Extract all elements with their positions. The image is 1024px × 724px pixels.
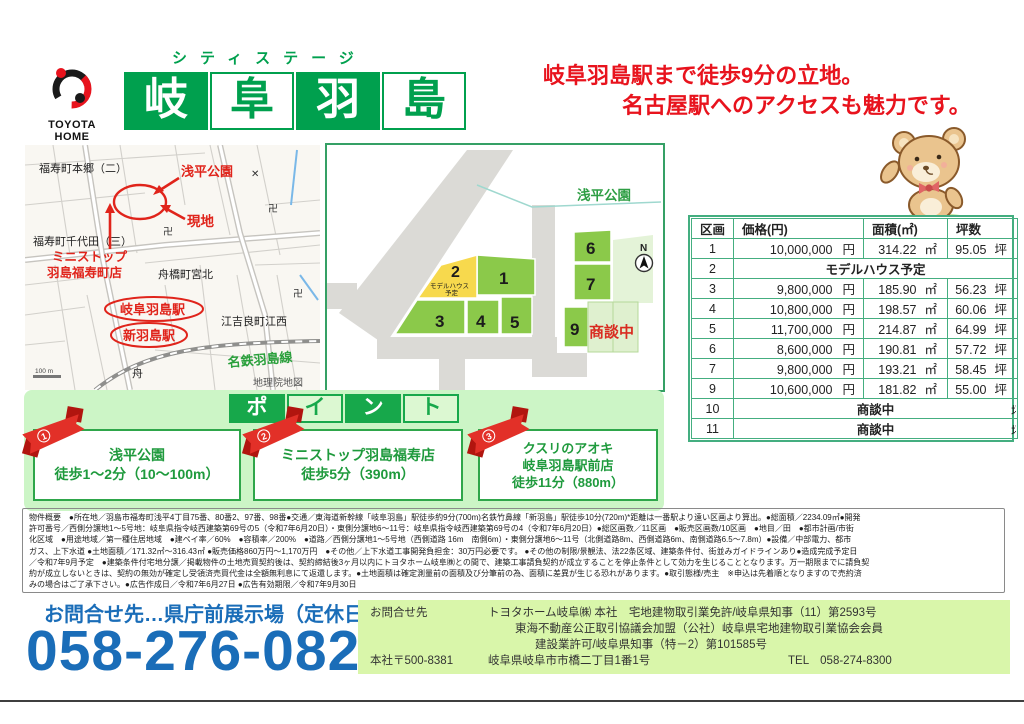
- point-card-drugstore: 3 クスリのアオキ 岐阜羽島駅前店 徒歩11分（880m）: [478, 429, 658, 501]
- col-header-price: 価格(円): [734, 219, 864, 239]
- title-char-1: 岐: [124, 72, 208, 130]
- lot-cell: 7: [692, 359, 734, 379]
- points-title: ポ イ ン ト: [229, 394, 459, 423]
- table-row: 1 10,000,000円 314.22㎡ 95.05坪: [692, 239, 1018, 259]
- price-cell: 10,000,000円: [734, 239, 864, 259]
- company-contact-label: お問合せ先: [370, 605, 488, 621]
- area-cell: 314.22㎡: [864, 239, 948, 259]
- point-text: 岐阜羽島駅前店: [480, 457, 656, 474]
- lot-cell: 9: [692, 379, 734, 399]
- map-label-gifu-hashima-sta: 岐阜羽島駅: [120, 302, 186, 317]
- phone-number: 058-276-0826: [26, 618, 393, 684]
- lot-cell: 2: [692, 259, 734, 279]
- model-house-cell: モデルハウス予定: [734, 259, 1018, 279]
- lot-cell: 3: [692, 279, 734, 299]
- lot-number-6: 6: [586, 239, 595, 258]
- tsubo-cell: 60.06坪: [948, 299, 1018, 319]
- table-row: 3 9,800,000円 185.90㎡ 56.23坪: [692, 279, 1018, 299]
- logo-line1: TOYOTA: [34, 119, 110, 131]
- map-school-icon: ✕: [251, 169, 259, 180]
- tsubo-cell: 64.99坪: [948, 319, 1018, 339]
- table-row: 4 10,800,000円 198.57㎡ 60.06坪: [692, 299, 1018, 319]
- company-info-box: お問合せ先トヨタホーム岐阜㈱ 本社 宅地建物取引業免許/岐阜県知事（11）第25…: [358, 600, 1010, 674]
- lot-number-2: 2: [451, 264, 460, 281]
- catch-copy-line1: 岐阜羽島駅まで徒歩9分の立地。: [543, 58, 863, 90]
- title-char-4: 島: [382, 72, 466, 130]
- company-line-3: 建設業許可/岐阜県知事（特－2）第101585号: [370, 637, 998, 653]
- table-row: 11 商談中坪: [692, 419, 1018, 439]
- price-cell: 9,800,000円: [734, 279, 864, 299]
- title-char-2: 阜: [210, 72, 294, 130]
- model-house-note-2: 予定: [445, 288, 459, 297]
- overview-line: みの場合はご了承下さい。●広告作成日／令和7年6月27日 ●広告有効期限／令和7…: [29, 579, 998, 590]
- lot-number-7: 7: [586, 275, 595, 294]
- siteplan-park-label: 浅平公園: [577, 187, 631, 203]
- logo-line2: HOME: [34, 131, 110, 143]
- map-label-chiyoda: 福寿町千代田（三）: [33, 234, 132, 248]
- lot-number-5: 5: [510, 313, 519, 332]
- price-cell: 10,600,000円: [734, 379, 864, 399]
- overview-line: 許可番号／西側分譲地1～5号地：岐阜県指令岐西建築第69号の5（令和7年6月20…: [29, 523, 998, 534]
- table-row: 7 9,800,000円 193.21㎡ 58.45坪: [692, 359, 1018, 379]
- map-temple-icon: 卍: [293, 288, 303, 300]
- hq-address: 岐阜県岐阜市市橋二丁目1番1号: [488, 653, 788, 669]
- table-header-row: 区画 価格(円) 面積(㎡) 坪数: [692, 219, 1018, 239]
- overview-line: 約が成立しないときは、契約の無効が確定し受領済売買代金は全額無利息にて返還します…: [29, 568, 998, 579]
- series-subtitle: シティステージ: [172, 47, 367, 68]
- site-plan: 浅平公園 1 2 モデルハウス 予定 3 4: [325, 143, 665, 392]
- map-credit: 地理院地図: [253, 376, 303, 389]
- pending-cell: 商談中坪: [734, 399, 1018, 419]
- overview-line: 化区域 ●用途地域／第一種住居地域 ●建ペイ率／60% ●容積率／200% ●道…: [29, 534, 998, 545]
- table-row: 2 モデルハウス予定: [692, 259, 1018, 279]
- pending-cell: 商談中坪: [734, 419, 1018, 439]
- points-title-char-4: ト: [403, 394, 459, 423]
- table-row: 10 商談中坪: [692, 399, 1018, 419]
- lot-cell: 11: [692, 419, 734, 439]
- table-row: 5 11,700,000円 214.87㎡ 64.99坪: [692, 319, 1018, 339]
- area-cell: 185.90㎡: [864, 279, 948, 299]
- points-title-char-3: ン: [345, 394, 401, 423]
- area-cell: 190.81㎡: [864, 339, 948, 359]
- toyota-home-logo: TOYOTA HOME: [34, 64, 110, 143]
- map-temple-icon: 卍: [163, 226, 173, 238]
- price-table: 区画 価格(円) 面積(㎡) 坪数 1 10,000,000円 314.22㎡ …: [688, 215, 1014, 442]
- model-house-note-1: モデルハウス: [430, 281, 469, 290]
- company-line-4: 本社〒500-8381岐阜県岐阜市市橋二丁目1番1号TEL 058-274-83…: [370, 653, 998, 669]
- price-cell: 11,700,000円: [734, 319, 864, 339]
- lot-number-3: 3: [435, 312, 444, 331]
- map-label-asahira-park: 浅平公園: [181, 164, 233, 179]
- point-text: 徒歩1～2分（10～100m）: [35, 465, 239, 484]
- title-char-3: 羽: [296, 72, 380, 130]
- table-row: 6 8,600,000円 190.81㎡ 57.72坪: [692, 339, 1018, 359]
- map-label-fune: 舟: [132, 366, 143, 380]
- point-text: ミニストップ羽島福寿店: [255, 446, 461, 465]
- lot-cell: 10: [692, 399, 734, 419]
- park-boundary-line: [477, 185, 661, 207]
- tsubo-cell: 56.23坪: [948, 279, 1018, 299]
- lot-number-4: 4: [476, 312, 486, 331]
- lot-cell: 4: [692, 299, 734, 319]
- col-header-lot: 区画: [692, 219, 734, 239]
- overview-line: ／令和7年9月予定 ●建築条件付宅地分譲／掲載物件の土地売買契約後は、契約締結後…: [29, 557, 998, 568]
- area-cell: 214.87㎡: [864, 319, 948, 339]
- tsubo-cell: 57.72坪: [948, 339, 1018, 359]
- map-label-genchi: 現地: [187, 213, 214, 229]
- property-title: 岐 阜 羽 島: [124, 72, 466, 130]
- map-label-egira: 江吉良町江西: [221, 314, 287, 328]
- map-label-ministop2: 羽島福寿町店: [47, 265, 123, 280]
- overview-line: 物件概要 ●所在地／羽島市福寿町浅平4丁目75番、80番2、97番、98番●交通…: [29, 512, 998, 523]
- map-scale: 100 m: [35, 368, 53, 375]
- price-cell: 9,800,000円: [734, 359, 864, 379]
- lot-cell: 5: [692, 319, 734, 339]
- price-cell: 10,800,000円: [734, 299, 864, 319]
- toyota-home-logo-icon: [47, 64, 97, 114]
- table-row: 9 10,600,000円 181.82㎡ 55.00坪: [692, 379, 1018, 399]
- points-section: ポ イ ン ト 1 浅平公園 徒歩1～2分（10～100m） 2 ミニストップ羽…: [24, 390, 664, 511]
- col-header-tsubo: 坪数: [948, 219, 1018, 239]
- point-text: 徒歩11分（880m）: [480, 474, 656, 491]
- area-cell: 193.21㎡: [864, 359, 948, 379]
- map-label-hongo: 福寿町本郷（二）: [39, 161, 127, 175]
- map-temple-icon: 卍: [268, 203, 278, 215]
- hq-telephone: TEL 058-274-8300: [788, 655, 892, 667]
- page-bottom-rule: [0, 700, 1024, 702]
- point-card-park: 1 浅平公園 徒歩1～2分（10～100m）: [33, 429, 241, 501]
- lot-number-9: 9: [570, 320, 579, 339]
- hq-postal-code: 本社〒500-8381: [370, 653, 488, 669]
- map-label-funabashi: 舟橋町宮北: [158, 267, 213, 281]
- tsubo-cell: 95.05坪: [948, 239, 1018, 259]
- price-cell: 8,600,000円: [734, 339, 864, 359]
- siteplan-pending-label: 商談中: [589, 323, 634, 341]
- area-cell: 181.82㎡: [864, 379, 948, 399]
- lot-cell: 1: [692, 239, 734, 259]
- company-line-2: 東海不動産公正取引協議会加盟（公社）岐阜県宅地建物取引業協会会員: [370, 621, 998, 637]
- bear-mascot-illustration: [874, 126, 978, 229]
- lot-number-1: 1: [499, 269, 508, 288]
- property-overview: 物件概要 ●所在地／羽島市福寿町浅平4丁目75番、80番2、97番、98番●交通…: [22, 508, 1005, 593]
- area-cell: 198.57㎡: [864, 299, 948, 319]
- tsubo-cell: 55.00坪: [948, 379, 1018, 399]
- map-label-ministop1: ミニストップ: [52, 249, 128, 264]
- company-license: トヨタホーム岐阜㈱ 本社 宅地建物取引業免許/岐阜県知事（11）第2593号: [488, 607, 877, 619]
- location-map: 福寿町本郷（二） 福寿町千代田（三） 舟橋町宮北 江吉良町江西 舟 卍 卍 卍 …: [25, 145, 320, 390]
- col-header-area: 面積(㎡): [864, 219, 948, 239]
- catch-copy-line2: 名古屋駅へのアクセスも魅力です。: [622, 88, 971, 120]
- toyota-home-logo-text: TOYOTA HOME: [34, 119, 110, 143]
- flyer-page: TOYOTA HOME シティステージ 岐 阜 羽 島 岐阜羽島駅まで徒歩9分の…: [0, 0, 1024, 724]
- tsubo-cell: 58.45坪: [948, 359, 1018, 379]
- point-text: 徒歩5分（390m）: [255, 465, 461, 484]
- map-label-shin-hashima-sta: 新羽島駅: [123, 328, 176, 343]
- point-card-ministop: 2 ミニストップ羽島福寿店 徒歩5分（390m）: [253, 429, 463, 501]
- company-line-1: お問合せ先トヨタホーム岐阜㈱ 本社 宅地建物取引業免許/岐阜県知事（11）第25…: [370, 605, 998, 621]
- overview-line: ガス、上下水道 ●土地面積／171.32㎡～316.43㎡ ●販売価格860万円…: [29, 546, 998, 557]
- lot-cell: 6: [692, 339, 734, 359]
- svg-text:N: N: [640, 243, 647, 254]
- point-text: 浅平公園: [35, 446, 239, 465]
